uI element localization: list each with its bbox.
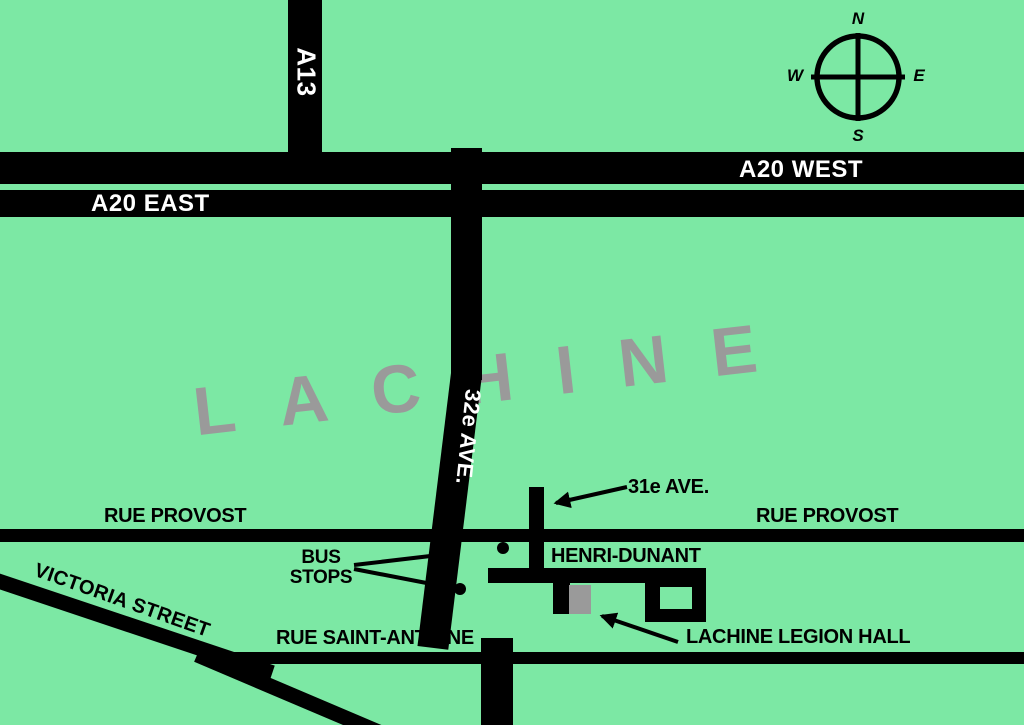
- a13-label: A13: [291, 47, 322, 96]
- bus-stops-label: BUS STOPS: [284, 548, 358, 588]
- bus-stops-label-line2: STOPS: [284, 568, 358, 588]
- bus-stop-upper-arrow: [354, 553, 456, 565]
- henri-dunant-label: HENRI-DUNANT: [551, 546, 701, 567]
- bus-stop-dot-south: [454, 583, 466, 595]
- compass-north-label: N: [852, 9, 864, 29]
- rue-provost-left-label: RUE PROVOST: [104, 506, 246, 527]
- ave31-pointer-arrow: [556, 487, 627, 503]
- a20-east-label: A20 EAST: [91, 191, 210, 217]
- bus-stop-dot-north: [497, 542, 509, 554]
- rue-saint-antoine-label: RUE SAINT-ANTOINE: [276, 628, 474, 649]
- lachine-street-map: LACHINE N S W E A13: [0, 0, 1024, 725]
- bus-stop-lower-arrow: [354, 569, 442, 586]
- ave31-label: 31e AVE.: [628, 477, 709, 498]
- legion-hall-pointer-arrow: [602, 616, 678, 642]
- bus-stops-label-line1: BUS: [284, 548, 358, 568]
- legion-hall-label: LACHINE LEGION HALL: [686, 627, 910, 648]
- a20-west-label: A20 WEST: [739, 155, 863, 184]
- compass-west-label: W: [787, 66, 803, 86]
- compass-south-label: S: [852, 126, 863, 146]
- compass-rose-icon: [811, 33, 905, 121]
- compass-east-label: E: [913, 66, 924, 86]
- rue-provost-right-label: RUE PROVOST: [756, 506, 898, 527]
